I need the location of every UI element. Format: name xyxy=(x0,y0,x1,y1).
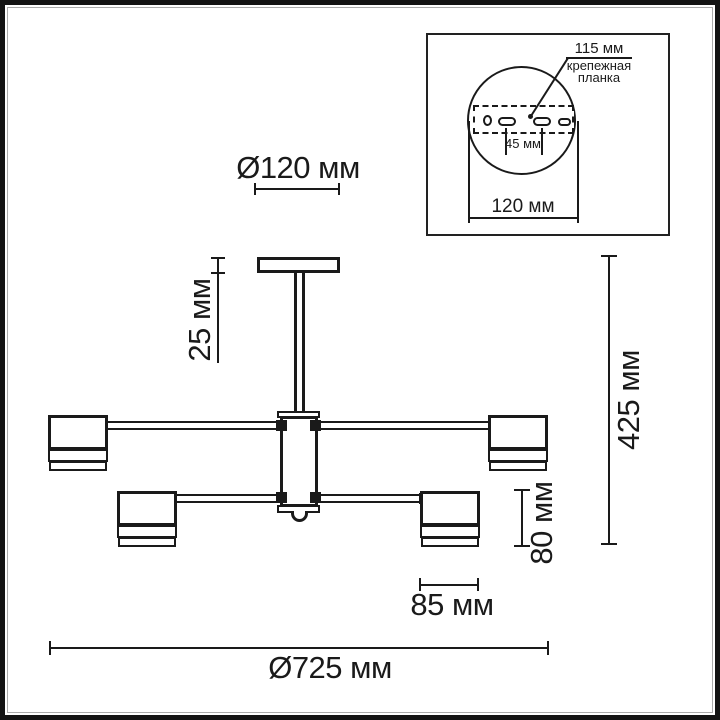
arm-upper-right xyxy=(318,421,491,430)
canopy-diameter-label: Ø120 мм xyxy=(225,151,371,185)
shade-width-label: 85 мм xyxy=(386,588,518,622)
total-height-dim-tick-bottom xyxy=(601,543,617,545)
shade-height-label: 80 мм xyxy=(525,463,557,583)
canopy-diameter-dim-line xyxy=(255,188,340,190)
lamp-shade xyxy=(117,491,177,526)
joint-hub-lower-right xyxy=(310,492,321,503)
bracket-label-line2: планка xyxy=(552,72,646,84)
joint-hub-upper-left xyxy=(276,420,287,431)
fixture-diameter-dim-line xyxy=(50,647,548,649)
canopy-drop-dim-tick-top xyxy=(211,257,225,259)
joint-hub-upper-right xyxy=(310,420,321,431)
hub-finial xyxy=(291,511,308,522)
total-height-dim-line xyxy=(608,256,610,545)
arm-lower-right xyxy=(318,494,422,503)
total-height-dim-tick-top xyxy=(601,255,617,257)
plate-slot-small xyxy=(558,118,571,126)
fixture-diameter-label: Ø725 мм xyxy=(240,651,420,685)
fixture-diameter-dim-tick-right xyxy=(547,641,549,655)
lamp-inner-right xyxy=(420,491,480,547)
circle-diameter-ext-left xyxy=(468,121,470,223)
slot-spacing-label: 45 мм xyxy=(501,136,545,151)
shade-width-dim-line xyxy=(420,584,478,586)
lamp-trim-ring xyxy=(49,461,107,471)
lamp-shade xyxy=(48,415,108,450)
canopy-drop-label: 25 мм xyxy=(183,260,215,380)
plate-slot-right xyxy=(533,117,551,126)
arm-upper-left xyxy=(106,421,279,430)
plate-hole-round xyxy=(483,115,492,126)
joint-hub-lower-left xyxy=(276,492,287,503)
stem-tube xyxy=(294,272,305,413)
canopy-diameter-dim-tick-right xyxy=(338,183,340,195)
lamp-trim-ring xyxy=(421,537,479,547)
lamp-shade xyxy=(488,415,548,450)
plate-width-label: 115 мм xyxy=(561,40,637,57)
lamp-inner-left xyxy=(117,491,177,547)
shade-height-dim-line xyxy=(521,490,523,547)
circle-diameter-ext-right xyxy=(577,121,579,223)
lamp-outer-left xyxy=(48,415,108,471)
ceiling-canopy xyxy=(257,257,340,273)
lamp-trim-ring xyxy=(118,537,176,547)
plate-slot-left xyxy=(498,117,516,126)
fixture-diameter-dim-tick-left xyxy=(49,641,51,655)
circle-diameter-label: 120 мм xyxy=(473,196,573,218)
canopy-diameter-dim-tick-left xyxy=(254,183,256,195)
arm-lower-left xyxy=(175,494,279,503)
bracket-label: крепежная планка xyxy=(552,60,646,84)
mounting-detail-inset: 115 мм крепежная планка 45 мм 120 мм xyxy=(426,33,670,236)
lamp-shade xyxy=(420,491,480,526)
total-height-label: 425 мм xyxy=(612,325,646,475)
